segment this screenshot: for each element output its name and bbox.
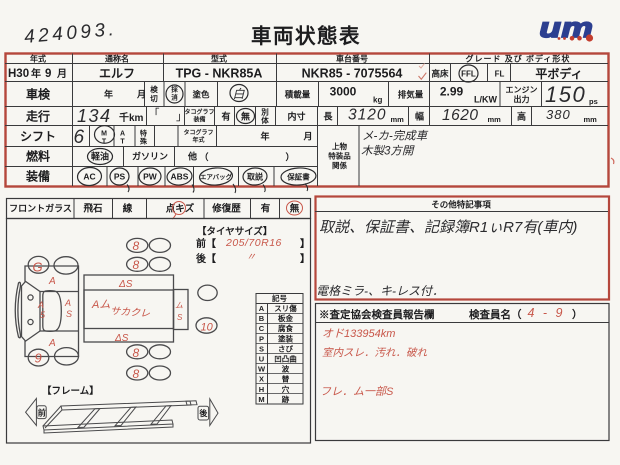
svg-text:特装品: 特装品	[328, 151, 351, 161]
svg-text:PW: PW	[143, 172, 158, 182]
svg-text:木製3方開: 木製3方開	[361, 145, 415, 158]
svg-text:年式: 年式	[192, 136, 204, 144]
svg-text:検: 検	[150, 84, 158, 94]
svg-text:NKR85 - 7075564: NKR85 - 7075564	[302, 67, 403, 81]
svg-text:平ボディ: 平ボディ	[535, 66, 582, 81]
svg-text:【フレーム】: 【フレーム】	[42, 385, 99, 397]
svg-text:8: 8	[133, 367, 140, 381]
svg-text:A: A	[259, 304, 265, 313]
svg-text:さび: さび	[278, 343, 293, 353]
svg-text:前: 前	[38, 407, 46, 417]
svg-text:フロントガラス: フロントガラス	[9, 203, 72, 214]
svg-text:380: 380	[546, 107, 571, 122]
svg-text:グレード 及び ボディ形状: グレード 及び ボディ形状	[466, 54, 571, 64]
svg-text:型式: 型式	[211, 54, 227, 64]
svg-text:FFL: FFL	[461, 70, 476, 79]
svg-text:塗装: 塗装	[278, 333, 293, 343]
svg-text:消: 消	[171, 93, 178, 102]
svg-text:波: 波	[282, 364, 290, 374]
svg-text:〃: 〃	[246, 252, 256, 263]
svg-text:S: S	[259, 344, 264, 353]
svg-text:A: A	[37, 300, 44, 310]
svg-text:kg: kg	[373, 96, 382, 105]
svg-text:月: 月	[136, 90, 146, 100]
svg-text:室内スレ．汚れ．破れ: 室内スレ．汚れ．破れ	[322, 347, 427, 359]
svg-text:車検: 車検	[26, 87, 51, 102]
svg-text:その他特記事項: その他特記事項	[431, 200, 491, 210]
svg-text:A: A	[120, 131, 125, 138]
svg-text:4 - 9: 4 - 9	[528, 306, 566, 320]
svg-text:替: 替	[282, 374, 290, 384]
svg-text:G: G	[33, 260, 43, 275]
svg-text:通称名: 通称名	[105, 54, 129, 64]
svg-text:修復歴: 修復歴	[211, 203, 241, 215]
svg-text:B: B	[259, 314, 265, 323]
svg-text:幅: 幅	[415, 111, 424, 122]
svg-text:燃料: 燃料	[26, 149, 50, 164]
svg-text:mm: mm	[584, 115, 598, 124]
svg-text:タコグラフ: タコグラフ	[183, 129, 213, 137]
svg-text:AC: AC	[83, 172, 95, 182]
svg-text:150: 150	[545, 82, 586, 107]
svg-text:記号: 記号	[272, 293, 287, 303]
svg-text:M: M	[258, 395, 264, 404]
svg-text:タコグラフ: タコグラフ	[184, 108, 214, 116]
svg-text:塗色: 塗色	[192, 90, 210, 100]
svg-text:134: 134	[77, 106, 112, 126]
svg-text:腐食: 腐食	[278, 323, 293, 333]
svg-text:A: A	[48, 276, 56, 287]
svg-text:有: 有	[221, 111, 230, 122]
svg-text:白: 白	[233, 87, 246, 101]
svg-text:U: U	[259, 355, 264, 364]
svg-text:A: A	[48, 338, 56, 349]
svg-text:M: M	[101, 131, 107, 138]
svg-text:穴: 穴	[282, 384, 290, 394]
svg-text:千km: 千km	[119, 111, 144, 124]
svg-text:車両状態表: 車両状態表	[251, 24, 361, 48]
svg-text:取説、保証書、記録簿R1ぃR7有(車内): 取説、保証書、記録簿R1ぃR7有(車内)	[319, 219, 577, 236]
svg-text:軽油: 軽油	[91, 151, 109, 162]
svg-text:P: P	[259, 334, 264, 343]
svg-text:ム: ム	[175, 301, 183, 310]
svg-text:S: S	[177, 313, 183, 322]
svg-text:飛石: 飛石	[82, 204, 103, 215]
svg-text:mm: mm	[488, 115, 502, 124]
svg-text:車台番号: 車台番号	[336, 54, 368, 64]
svg-text:月: 月	[56, 68, 67, 80]
svg-text:スリ傷: スリ傷	[274, 303, 297, 313]
svg-text:（: （	[200, 152, 209, 162]
svg-text:）: ）	[286, 152, 295, 162]
svg-text:内寸: 内寸	[287, 111, 305, 122]
svg-text:【タイヤサイズ】: 【タイヤサイズ】	[197, 226, 272, 238]
svg-text:W: W	[258, 365, 266, 374]
svg-text:mm: mm	[391, 115, 405, 124]
svg-text:後【: 後【	[196, 252, 216, 265]
svg-text:装備: 装備	[192, 116, 205, 124]
svg-text:点キズ: 点キズ	[166, 203, 195, 215]
svg-text:10: 10	[201, 322, 214, 334]
svg-text:メ-カ-完成車: メ-カ-完成車	[362, 130, 429, 143]
svg-text:PS: PS	[114, 172, 126, 182]
svg-text:S: S	[66, 309, 72, 319]
svg-text:積載量: 積載量	[284, 90, 311, 100]
svg-text:切: 切	[150, 93, 158, 103]
svg-text:無: 無	[290, 203, 300, 215]
svg-text:】: 】	[300, 237, 310, 250]
svg-text:※査定協会検査員報告欄: ※査定協会検査員報告欄	[319, 308, 435, 321]
svg-text:】: 】	[300, 252, 310, 265]
svg-text:Aム: Aム	[91, 299, 110, 311]
svg-text:板金: 板金	[278, 313, 293, 323]
svg-text:C: C	[259, 324, 265, 333]
svg-text:3000: 3000	[330, 85, 357, 99]
svg-text:T: T	[120, 139, 125, 146]
svg-text:エンジン: エンジン	[506, 86, 538, 95]
svg-text:無: 無	[241, 111, 250, 122]
svg-text:1620: 1620	[442, 107, 478, 124]
svg-text:ガソリン: ガソリン	[132, 151, 168, 162]
svg-text:um: um	[539, 12, 593, 44]
svg-text:T: T	[102, 139, 107, 146]
svg-text:2.99: 2.99	[440, 85, 464, 99]
svg-text:年式: 年式	[30, 54, 46, 64]
svg-text:H: H	[259, 385, 264, 394]
svg-text:3120: 3120	[348, 107, 386, 124]
svg-text:前【: 前【	[196, 237, 216, 250]
svg-text:上物: 上物	[332, 141, 347, 151]
svg-text:X: X	[259, 375, 264, 384]
svg-text:ps: ps	[589, 97, 598, 106]
svg-text:ΔS: ΔS	[118, 279, 133, 290]
svg-text:フレ．ム一部S: フレ．ム一部S	[320, 385, 394, 398]
svg-text:TPG - NKR85A: TPG - NKR85A	[176, 67, 263, 81]
svg-text:）: ）	[572, 308, 583, 321]
svg-text:検査員名（: 検査員名（	[469, 308, 522, 321]
svg-text:H30: H30	[8, 68, 29, 80]
svg-text:エアバッグ: エアバッグ	[200, 172, 233, 181]
svg-text:205/70R16: 205/70R16	[225, 237, 282, 249]
svg-text:線: 線	[123, 203, 133, 215]
svg-text:殊: 殊	[140, 137, 148, 146]
svg-text:9: 9	[45, 68, 51, 80]
svg-text:L/KW: L/KW	[474, 95, 497, 105]
svg-text:電格ミラ-、キ-レス付．: 電格ミラ-、キ-レス付．	[316, 284, 444, 298]
svg-text:走行: 走行	[26, 109, 50, 124]
svg-text:ΔS: ΔS	[114, 333, 129, 344]
svg-text:特: 特	[140, 129, 147, 138]
svg-text:6: 6	[74, 127, 85, 148]
svg-text:関係: 関係	[332, 160, 347, 170]
svg-text:有: 有	[261, 203, 271, 215]
svg-text:「: 「	[149, 107, 160, 120]
svg-text:ABS: ABS	[171, 172, 189, 182]
svg-text:年: 年	[31, 67, 41, 80]
svg-text:高床: 高床	[431, 69, 449, 79]
svg-text:9: 9	[35, 351, 42, 366]
svg-text:出力: 出力	[514, 94, 530, 104]
svg-text:装備: 装備	[25, 169, 50, 184]
svg-text:8: 8	[133, 346, 140, 360]
svg-text:凹凸曲: 凹凸曲	[274, 354, 297, 364]
svg-text:後: 後	[199, 408, 208, 418]
svg-text:排気量: 排気量	[398, 90, 424, 100]
svg-text:8: 8	[133, 239, 140, 253]
svg-text:高: 高	[517, 111, 526, 122]
svg-text:年: 年	[260, 131, 269, 142]
svg-text:年: 年	[104, 89, 113, 100]
svg-text:長: 長	[323, 112, 333, 122]
svg-text:FL: FL	[495, 70, 505, 79]
svg-text:取説: 取説	[247, 172, 263, 182]
svg-text:エルフ: エルフ	[99, 67, 135, 81]
svg-text:A: A	[64, 298, 71, 308]
svg-text:シフト: シフト	[20, 130, 56, 144]
svg-text:他: 他	[187, 151, 197, 162]
svg-text:保証書: 保証書	[286, 172, 310, 182]
svg-text:8: 8	[133, 258, 140, 272]
svg-text:体: 体	[261, 115, 269, 125]
svg-text:オド133954km: オド133954km	[322, 328, 395, 340]
svg-text:月: 月	[302, 132, 312, 142]
svg-text:跡: 跡	[282, 394, 290, 404]
